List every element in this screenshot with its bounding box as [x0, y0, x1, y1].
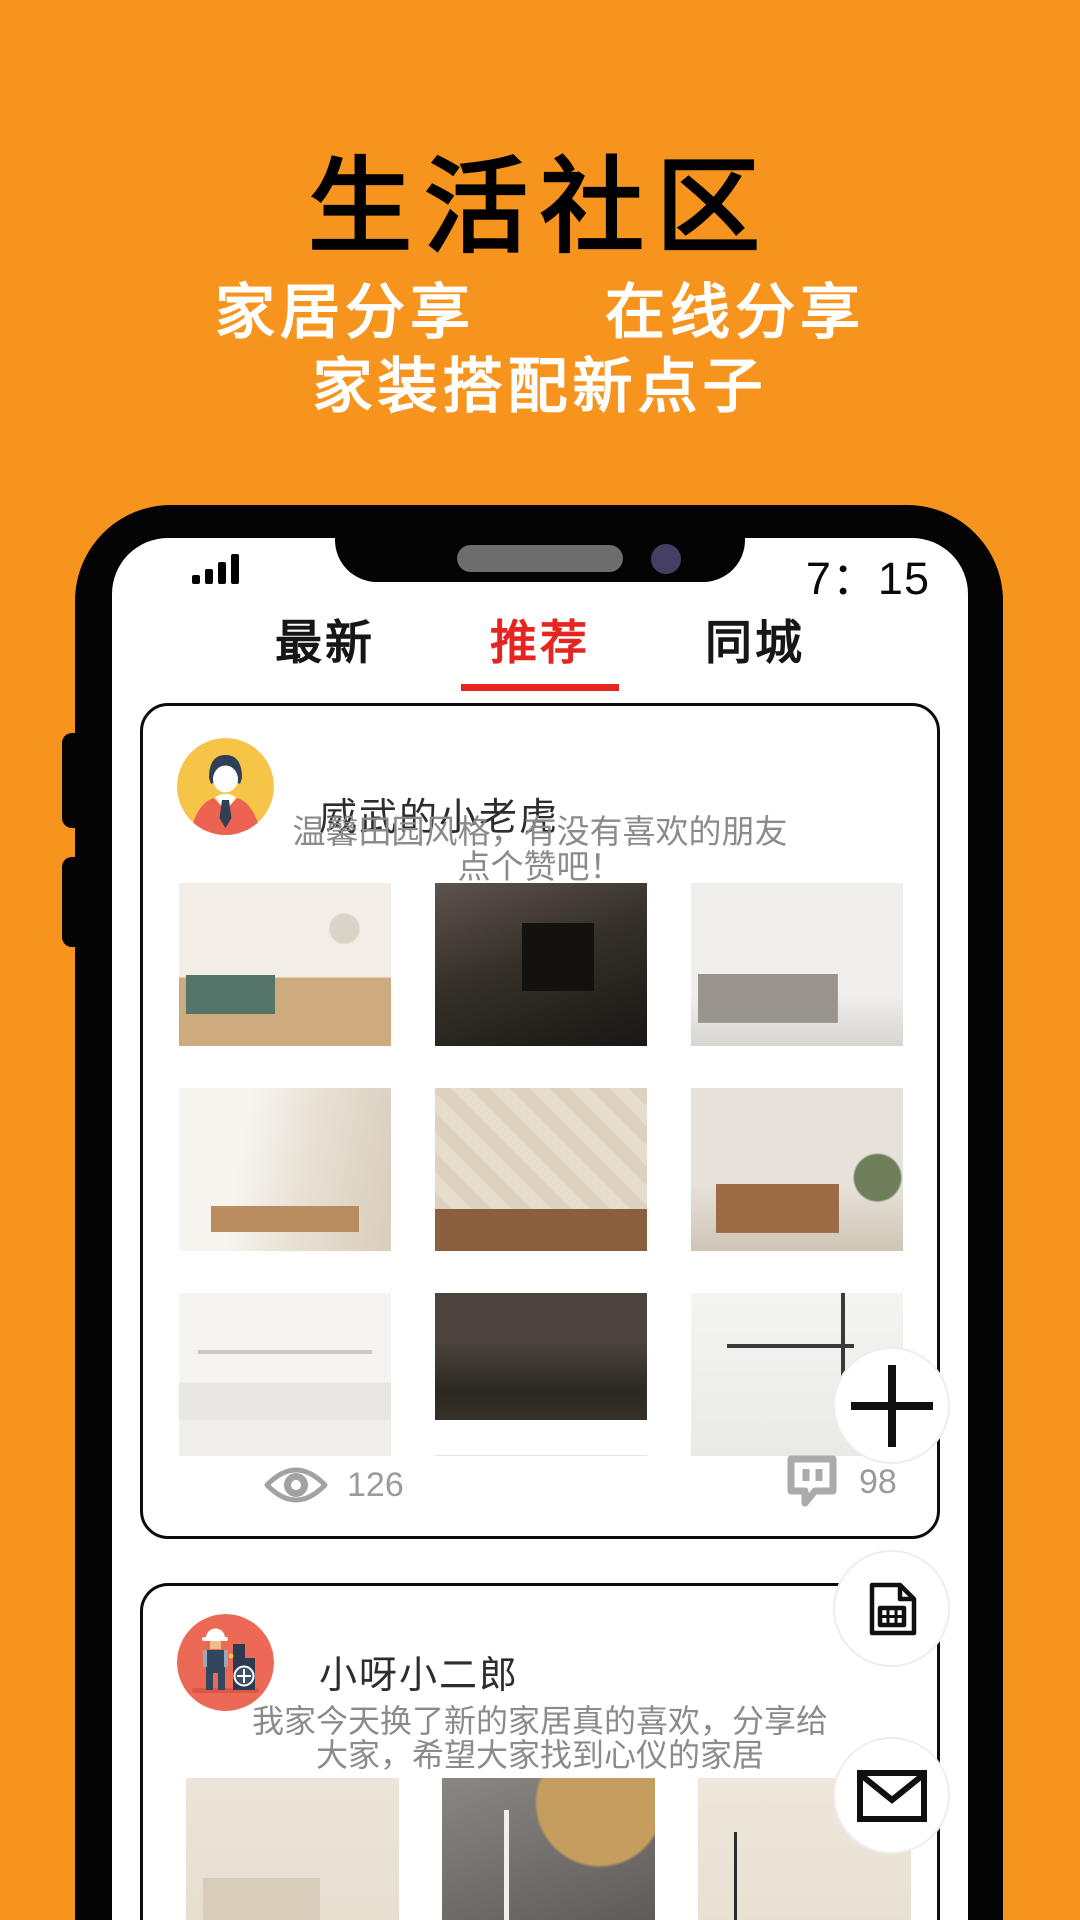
- mail-icon: [856, 1769, 928, 1823]
- volume-down-button: [62, 857, 78, 947]
- post-photo[interactable]: [442, 1778, 655, 1920]
- post-photo[interactable]: [179, 1088, 391, 1251]
- comments-counter[interactable]: 98: [783, 1454, 897, 1510]
- page-title: 生活社区: [0, 122, 1080, 273]
- promo-screenshot: 生活社区 家居分享 在线分享 家装搭配新点子 7：15 最新 推荐 同城: [0, 0, 1080, 1920]
- active-tab-underline: [461, 684, 619, 691]
- tab-latest[interactable]: 最新: [275, 604, 375, 673]
- post-photo[interactable]: [435, 1293, 647, 1456]
- eye-icon: [263, 1464, 329, 1506]
- post-text-line1: 温馨田园风格，有没有喜欢的朋友: [143, 814, 937, 849]
- post-photo-grid: [186, 1778, 911, 1920]
- post-photo[interactable]: [435, 883, 647, 1046]
- status-time: 7：15: [806, 542, 930, 607]
- tab-recommended-label: 推荐: [490, 616, 590, 669]
- post-photo[interactable]: [186, 1778, 399, 1920]
- post-photo[interactable]: [179, 1293, 391, 1456]
- post-photo[interactable]: [179, 883, 391, 1046]
- plus-icon: [849, 1363, 935, 1449]
- feed-tabs: 最新 推荐 同城: [112, 604, 968, 673]
- post-text-line1: 我家今天换了新的家居真的喜欢，分享给: [143, 1704, 937, 1738]
- comments-count: 98: [859, 1463, 897, 1502]
- comment-bubble-icon: [783, 1454, 841, 1510]
- post-photo[interactable]: [691, 883, 903, 1046]
- post-text-line2: 点个赞吧！: [143, 849, 937, 884]
- subtitle-line-2: 家装搭配新点子: [0, 338, 1080, 425]
- tab-recommended[interactable]: 推荐: [490, 604, 590, 673]
- post-photo[interactable]: [691, 1088, 903, 1251]
- views-count: 126: [347, 1466, 404, 1505]
- tab-same-city[interactable]: 同城: [705, 604, 805, 673]
- speaker-grille: [457, 545, 623, 572]
- post-photo-grid: [179, 883, 903, 1456]
- post-text: 我家今天换了新的家居真的喜欢，分享给 大家，希望大家找到心仪的家居: [143, 1704, 937, 1772]
- views-counter: 126: [263, 1464, 404, 1506]
- messages-button[interactable]: [835, 1739, 948, 1852]
- post-username[interactable]: 小呀小二郎: [319, 1644, 519, 1699]
- signal-bars-icon: [192, 554, 239, 584]
- post-card[interactable]: 小呀小二郎 我家今天换了新的家居真的喜欢，分享给 大家，希望大家找到心仪的家居: [140, 1583, 940, 1920]
- avatar[interactable]: [177, 1614, 274, 1711]
- phone-notch: [335, 538, 745, 582]
- phone-mockup: 7：15 最新 推荐 同城: [75, 505, 1003, 1920]
- post-card[interactable]: 威武的小老虎 温馨田园风格，有没有喜欢的朋友 点个赞吧！: [140, 703, 940, 1539]
- add-post-button[interactable]: [835, 1349, 948, 1462]
- post-photo[interactable]: [435, 1088, 647, 1251]
- front-camera-dot: [651, 544, 681, 574]
- news-button[interactable]: [835, 1552, 948, 1665]
- post-text-line2: 大家，希望大家找到心仪的家居: [143, 1738, 937, 1772]
- volume-up-button: [62, 733, 78, 828]
- worker-avatar-icon: [177, 1614, 274, 1711]
- news-icon: [861, 1578, 923, 1640]
- phone-screen: 7：15 最新 推荐 同城: [112, 538, 968, 1920]
- post-text: 温馨田园风格，有没有喜欢的朋友 点个赞吧！: [143, 814, 937, 884]
